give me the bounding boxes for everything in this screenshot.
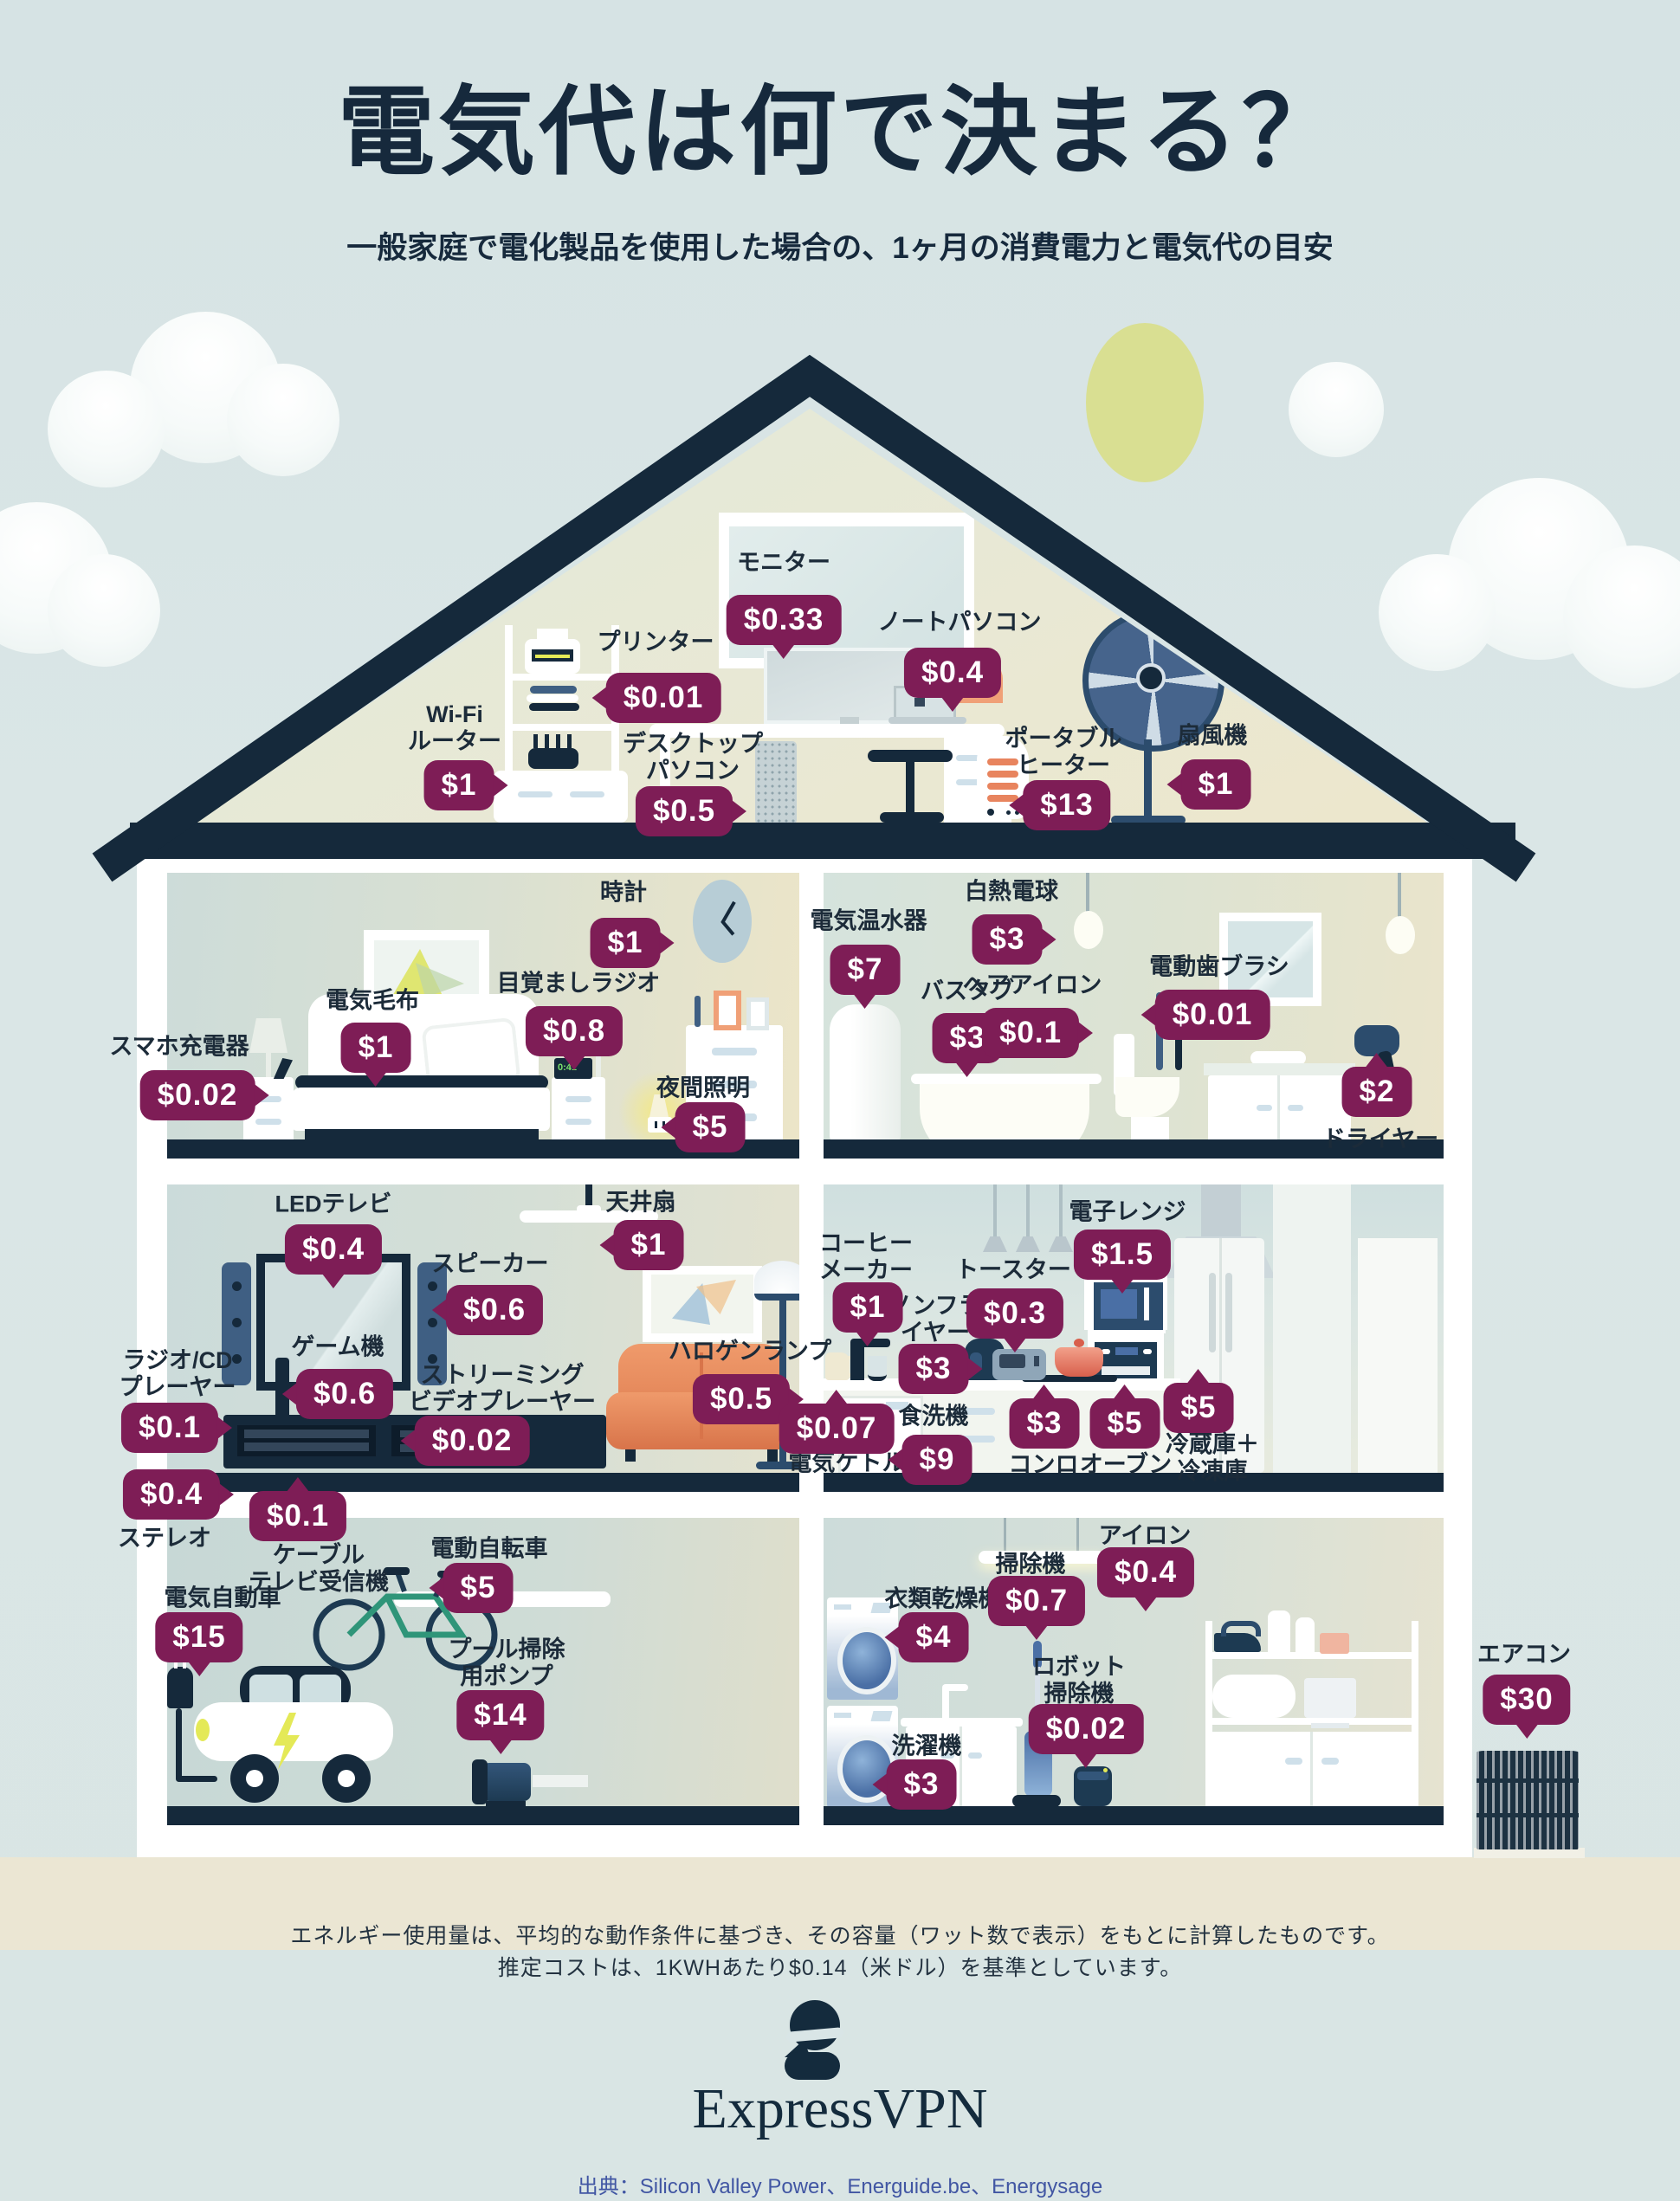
fridge_freezer-price: $5 <box>1181 1391 1217 1424</box>
laptop-price-bubble: $0.4 <box>904 648 1001 698</box>
page-title: 電気代は何で決まる？ <box>0 54 1680 194</box>
hair_dryer-label: ドライヤー <box>1322 1126 1438 1153</box>
game_console-price: $0.6 <box>313 1377 376 1410</box>
attic-window <box>719 513 974 668</box>
monitor-label: モニター <box>737 550 830 577</box>
pendant-light <box>1049 1236 1073 1252</box>
air_conditioner-label: エアコン <box>1477 1642 1571 1668</box>
cloud <box>1379 554 1496 671</box>
coffee_maker-price-bubble: $1 <box>833 1282 903 1333</box>
electric_blanket-label: 電気毛布 <box>326 988 419 1015</box>
streaming_player-price: $0.02 <box>432 1423 513 1457</box>
floor_fan-price-bubble: $1 <box>1181 759 1251 810</box>
robot_vacuum-label: ロボット 掃除機 <box>1032 1654 1126 1707</box>
electric_toothbrush-price: $0.01 <box>1173 997 1253 1031</box>
halogen_lamp-price: $0.5 <box>710 1382 772 1416</box>
wifi_router-price-bubble: $1 <box>424 760 494 810</box>
e_bike-price: $5 <box>461 1571 496 1604</box>
printer-price-bubble: $0.01 <box>606 673 721 723</box>
dresser-bottle <box>695 996 701 1027</box>
bed-illustration <box>292 994 548 1159</box>
incandescent_bulb-label: 白熱電球 <box>965 879 1058 906</box>
desktop_pc-label: デスクトップ パソコン <box>623 731 763 784</box>
cloud <box>48 371 165 487</box>
cable_tv_box-price: $0.1 <box>267 1499 329 1533</box>
coffee_maker-label: コーヒー メーカー <box>819 1230 913 1284</box>
water-heater-illustration <box>830 1004 901 1153</box>
hair_dryer-price: $2 <box>1360 1075 1395 1108</box>
iron-illustration <box>1214 1621 1261 1654</box>
led_tv-label: LEDテレビ <box>275 1191 392 1218</box>
microwave-price: $1.5 <box>1091 1237 1153 1271</box>
phone_charger-label: スマホ充電器 <box>109 1034 249 1061</box>
dishwasher-price-bubble: $9 <box>902 1435 972 1485</box>
clothes_dryer-price: $4 <box>916 1620 952 1654</box>
electric_blanket-price: $1 <box>359 1030 394 1064</box>
stereo-price: $0.4 <box>140 1477 203 1511</box>
ceiling_fan-price: $1 <box>631 1228 667 1262</box>
alarm_radio-price-bubble: $0.8 <box>526 1006 623 1056</box>
ev-charger-plug <box>167 1667 202 1788</box>
cooking-pot <box>1055 1339 1103 1377</box>
air_conditioner-price: $30 <box>1500 1682 1553 1716</box>
pantry-cabinet <box>1358 1238 1438 1473</box>
toaster-price-bubble: $0.3 <box>966 1288 1063 1339</box>
electric_blanket-price-bubble: $1 <box>341 1023 411 1073</box>
cloud <box>1289 362 1384 457</box>
monitor-price-bubble: $0.33 <box>727 595 842 645</box>
speaker-price-bubble: $0.6 <box>446 1285 543 1335</box>
expressvpn-logo-icon <box>772 1998 852 2085</box>
clock-price: $1 <box>608 926 643 959</box>
vacuum-price-bubble: $0.7 <box>988 1576 1085 1626</box>
phone_charger-price-bubble: $0.02 <box>140 1070 255 1120</box>
game_console-price-bubble: $0.6 <box>296 1369 393 1419</box>
hair_iron-price-bubble: $0.1 <box>982 1008 1079 1058</box>
hair_iron-label: ヘアアイロン <box>963 972 1102 999</box>
phone_charger-price: $0.02 <box>158 1078 238 1112</box>
halogen_lamp-price-bubble: $0.5 <box>693 1374 790 1424</box>
led_tv-price-bubble: $0.4 <box>285 1224 382 1275</box>
air-conditioner-illustration <box>1474 1744 1585 1862</box>
footer-note-1: エネルギー使用量は、平均的な動作条件に基づき、その容量（ワット数で表示）をもとに… <box>0 1919 1680 1950</box>
water_heater-price: $7 <box>848 952 883 986</box>
pendant-bulb <box>1086 873 1089 913</box>
vacuum-price: $0.7 <box>1005 1584 1068 1617</box>
water_heater-price-bubble: $7 <box>830 945 901 995</box>
incandescent_bulb-price-bubble: $3 <box>972 914 1043 965</box>
pendant-light <box>1026 1184 1030 1238</box>
sun <box>1086 323 1204 482</box>
air_fryer-price: $3 <box>916 1352 952 1385</box>
printer-illustration <box>525 629 580 674</box>
electric_toothbrush-label: 電動歯ブラシ <box>1149 954 1289 981</box>
phone-charger-illustration <box>270 1058 293 1079</box>
washing_machine-price-bubble: $3 <box>887 1759 957 1810</box>
clothes_dryer-label: 衣類乾燥機 <box>885 1586 1002 1613</box>
alarm_radio-price: $0.8 <box>543 1014 605 1048</box>
pendant-light <box>1016 1236 1040 1252</box>
ev_car-price-bubble: $15 <box>155 1612 242 1662</box>
dishwasher-label: 食洗機 <box>899 1404 969 1430</box>
iron-price: $0.4 <box>1115 1555 1177 1589</box>
floor_fan-price: $1 <box>1199 767 1234 801</box>
pendant-light <box>1059 1184 1063 1238</box>
radio_cd_player-price: $0.1 <box>139 1410 201 1444</box>
stereo-illustration <box>244 1443 369 1451</box>
pendant-light <box>993 1184 997 1238</box>
iron-label: アイロン <box>1099 1523 1192 1550</box>
e_bike-label: 電動自転車 <box>431 1536 548 1563</box>
oven-price-bubble: $5 <box>1090 1398 1160 1449</box>
printer-price: $0.01 <box>624 681 704 714</box>
electric_kettle-price: $0.07 <box>797 1411 877 1445</box>
wifi_router-label: Wi-Fi ルーター <box>408 701 501 755</box>
streaming_player-price-bubble: $0.02 <box>415 1416 530 1466</box>
toaster-illustration <box>992 1349 1046 1380</box>
pendant-light <box>983 1236 1007 1252</box>
incandescent_bulb-price: $3 <box>990 922 1025 956</box>
streaming_player-label: ストリーミング ビデオプレーヤー <box>409 1362 596 1416</box>
air_conditioner-price-bubble: $30 <box>1483 1675 1570 1725</box>
pantry-cabinet <box>1273 1184 1351 1473</box>
stove-label: コンロ <box>1009 1452 1079 1479</box>
e_bike-price-bubble: $5 <box>443 1563 514 1613</box>
page-subtitle: 一般家庭で電化製品を使用した場合の、1ヶ月の消費電力と電気代の目安 <box>0 223 1680 268</box>
water_heater-label: 電気温水器 <box>811 908 927 935</box>
hair_iron-price: $0.1 <box>999 1016 1062 1049</box>
iron-price-bubble: $0.4 <box>1097 1547 1194 1597</box>
stove-price: $3 <box>1027 1406 1063 1440</box>
books-illustration <box>527 686 580 712</box>
portable_heater-price-bubble: $13 <box>1023 780 1110 830</box>
game_console-label: ゲーム機 <box>291 1334 384 1361</box>
oven-label: オーブン <box>1080 1452 1172 1479</box>
portable_heater-label: ポータブル ヒーター <box>1005 726 1122 779</box>
stereo-label: ステレオ <box>118 1526 211 1552</box>
microwave-price-bubble: $1.5 <box>1074 1230 1171 1280</box>
bathtub-price: $3 <box>950 1021 985 1055</box>
stereo-price-bubble: $0.4 <box>123 1469 220 1520</box>
pool_pump-label: プール掃除 用ポンプ <box>449 1636 565 1690</box>
bedside-lamp <box>249 1018 288 1053</box>
wifi-router-illustration <box>528 734 578 769</box>
radio-cd-player-illustration <box>244 1430 369 1438</box>
laundry-shelf-unit <box>1205 1621 1418 1808</box>
desktop_pc-price: $0.5 <box>653 794 715 828</box>
toaster-price: $0.3 <box>984 1296 1046 1330</box>
wall-clock <box>693 880 752 963</box>
printer-label: プリンター <box>598 629 714 656</box>
ev_car-label: 電気自動車 <box>165 1585 281 1612</box>
clock-label: 時計 <box>600 880 647 907</box>
ceiling_fan-label: 天井扇 <box>606 1190 676 1217</box>
washing_machine-label: 洗濯機 <box>892 1733 962 1760</box>
radio_cd_player-label: ラジオ/CD プレーヤー <box>120 1347 236 1401</box>
cable_tv_box-price-bubble: $0.1 <box>249 1491 346 1541</box>
night_light-label: 夜間照明 <box>656 1075 750 1102</box>
radio_cd_player-price-bubble: $0.1 <box>121 1403 218 1453</box>
night_light-price: $5 <box>693 1110 728 1144</box>
clothes_dryer-price-bubble: $4 <box>899 1612 969 1662</box>
wall-art-frame <box>643 1266 762 1342</box>
source-line: 出典：Silicon Valley Power、Energuide.be、Ene… <box>0 2169 1680 2199</box>
pendant-bulb <box>1074 911 1103 949</box>
toaster-label: トースター <box>955 1257 1071 1284</box>
hair_dryer-price-bubble: $2 <box>1342 1067 1412 1117</box>
dresser-frame-small <box>746 997 769 1030</box>
monitor-price: $0.33 <box>744 603 824 636</box>
led_tv-price: $0.4 <box>302 1232 365 1266</box>
microwave-label: 電子レンジ <box>1069 1199 1186 1226</box>
laptop-label: ノートパソコン <box>878 610 1042 636</box>
fridge_freezer-label: 冷蔵庫＋ 冷凍庫 <box>1166 1431 1259 1485</box>
clothes-dryer-illustration <box>827 1597 898 1700</box>
alarm_radio-label: 目覚ましラジオ <box>497 971 660 997</box>
speaker-price: $0.6 <box>463 1293 526 1326</box>
halogen_lamp-label: ハロゲンランプ <box>669 1339 831 1365</box>
coffee_maker-price: $1 <box>850 1290 886 1324</box>
robot-vacuum-illustration <box>1074 1766 1112 1806</box>
laptop-price: $0.4 <box>921 655 984 689</box>
footer-note-2: 推定コストは、1KWHあたり$0.14（米ドル）を基準としています。 <box>0 1951 1680 1982</box>
brand-wordmark: ExpressVPN <box>0 2076 1680 2142</box>
robot_vacuum-price: $0.02 <box>1046 1712 1127 1746</box>
portable_heater-price: $13 <box>1040 788 1093 822</box>
ev_car-price: $15 <box>172 1620 225 1654</box>
oven-price: $5 <box>1108 1406 1143 1440</box>
pendant-bulb <box>1386 916 1415 954</box>
dresser-frame-orange <box>714 991 741 1030</box>
robot_vacuum-price-bubble: $0.02 <box>1029 1704 1144 1754</box>
night_light-price-bubble: $5 <box>675 1102 746 1152</box>
cloud <box>227 364 339 476</box>
stove-price-bubble: $3 <box>1010 1398 1080 1449</box>
floor_fan-label: 扇風機 <box>1178 723 1248 750</box>
dishwasher-price: $9 <box>920 1443 955 1476</box>
desktop_pc-price-bubble: $0.5 <box>636 786 733 836</box>
vacuum-label: 掃除機 <box>996 1552 1066 1578</box>
pool-pump-illustration <box>472 1758 602 1810</box>
electric_toothbrush-price-bubble: $0.01 <box>1155 990 1270 1040</box>
air_fryer-price-bubble: $3 <box>899 1344 969 1394</box>
pool_pump-price-bubble: $14 <box>456 1690 544 1740</box>
wifi_router-price: $1 <box>442 768 477 802</box>
pool_pump-price: $14 <box>474 1698 527 1732</box>
cloud <box>48 554 160 667</box>
fridge_freezer-price-bubble: $5 <box>1164 1383 1234 1433</box>
infographic-canvas: 電気代は何で決まる？ 一般家庭で電化製品を使用した場合の、1ヶ月の消費電力と電気… <box>0 0 1680 2201</box>
attic-floor-band <box>130 823 1515 859</box>
ev-car-illustration <box>192 1664 396 1806</box>
washing_machine-price: $3 <box>904 1767 940 1801</box>
ceiling_fan-price-bubble: $1 <box>614 1220 684 1270</box>
pendant-bulb <box>1398 873 1401 918</box>
speaker-label: スピーカー <box>432 1251 549 1278</box>
clock-price-bubble: $1 <box>591 918 661 968</box>
electric_kettle-price-bubble: $0.07 <box>779 1404 895 1454</box>
